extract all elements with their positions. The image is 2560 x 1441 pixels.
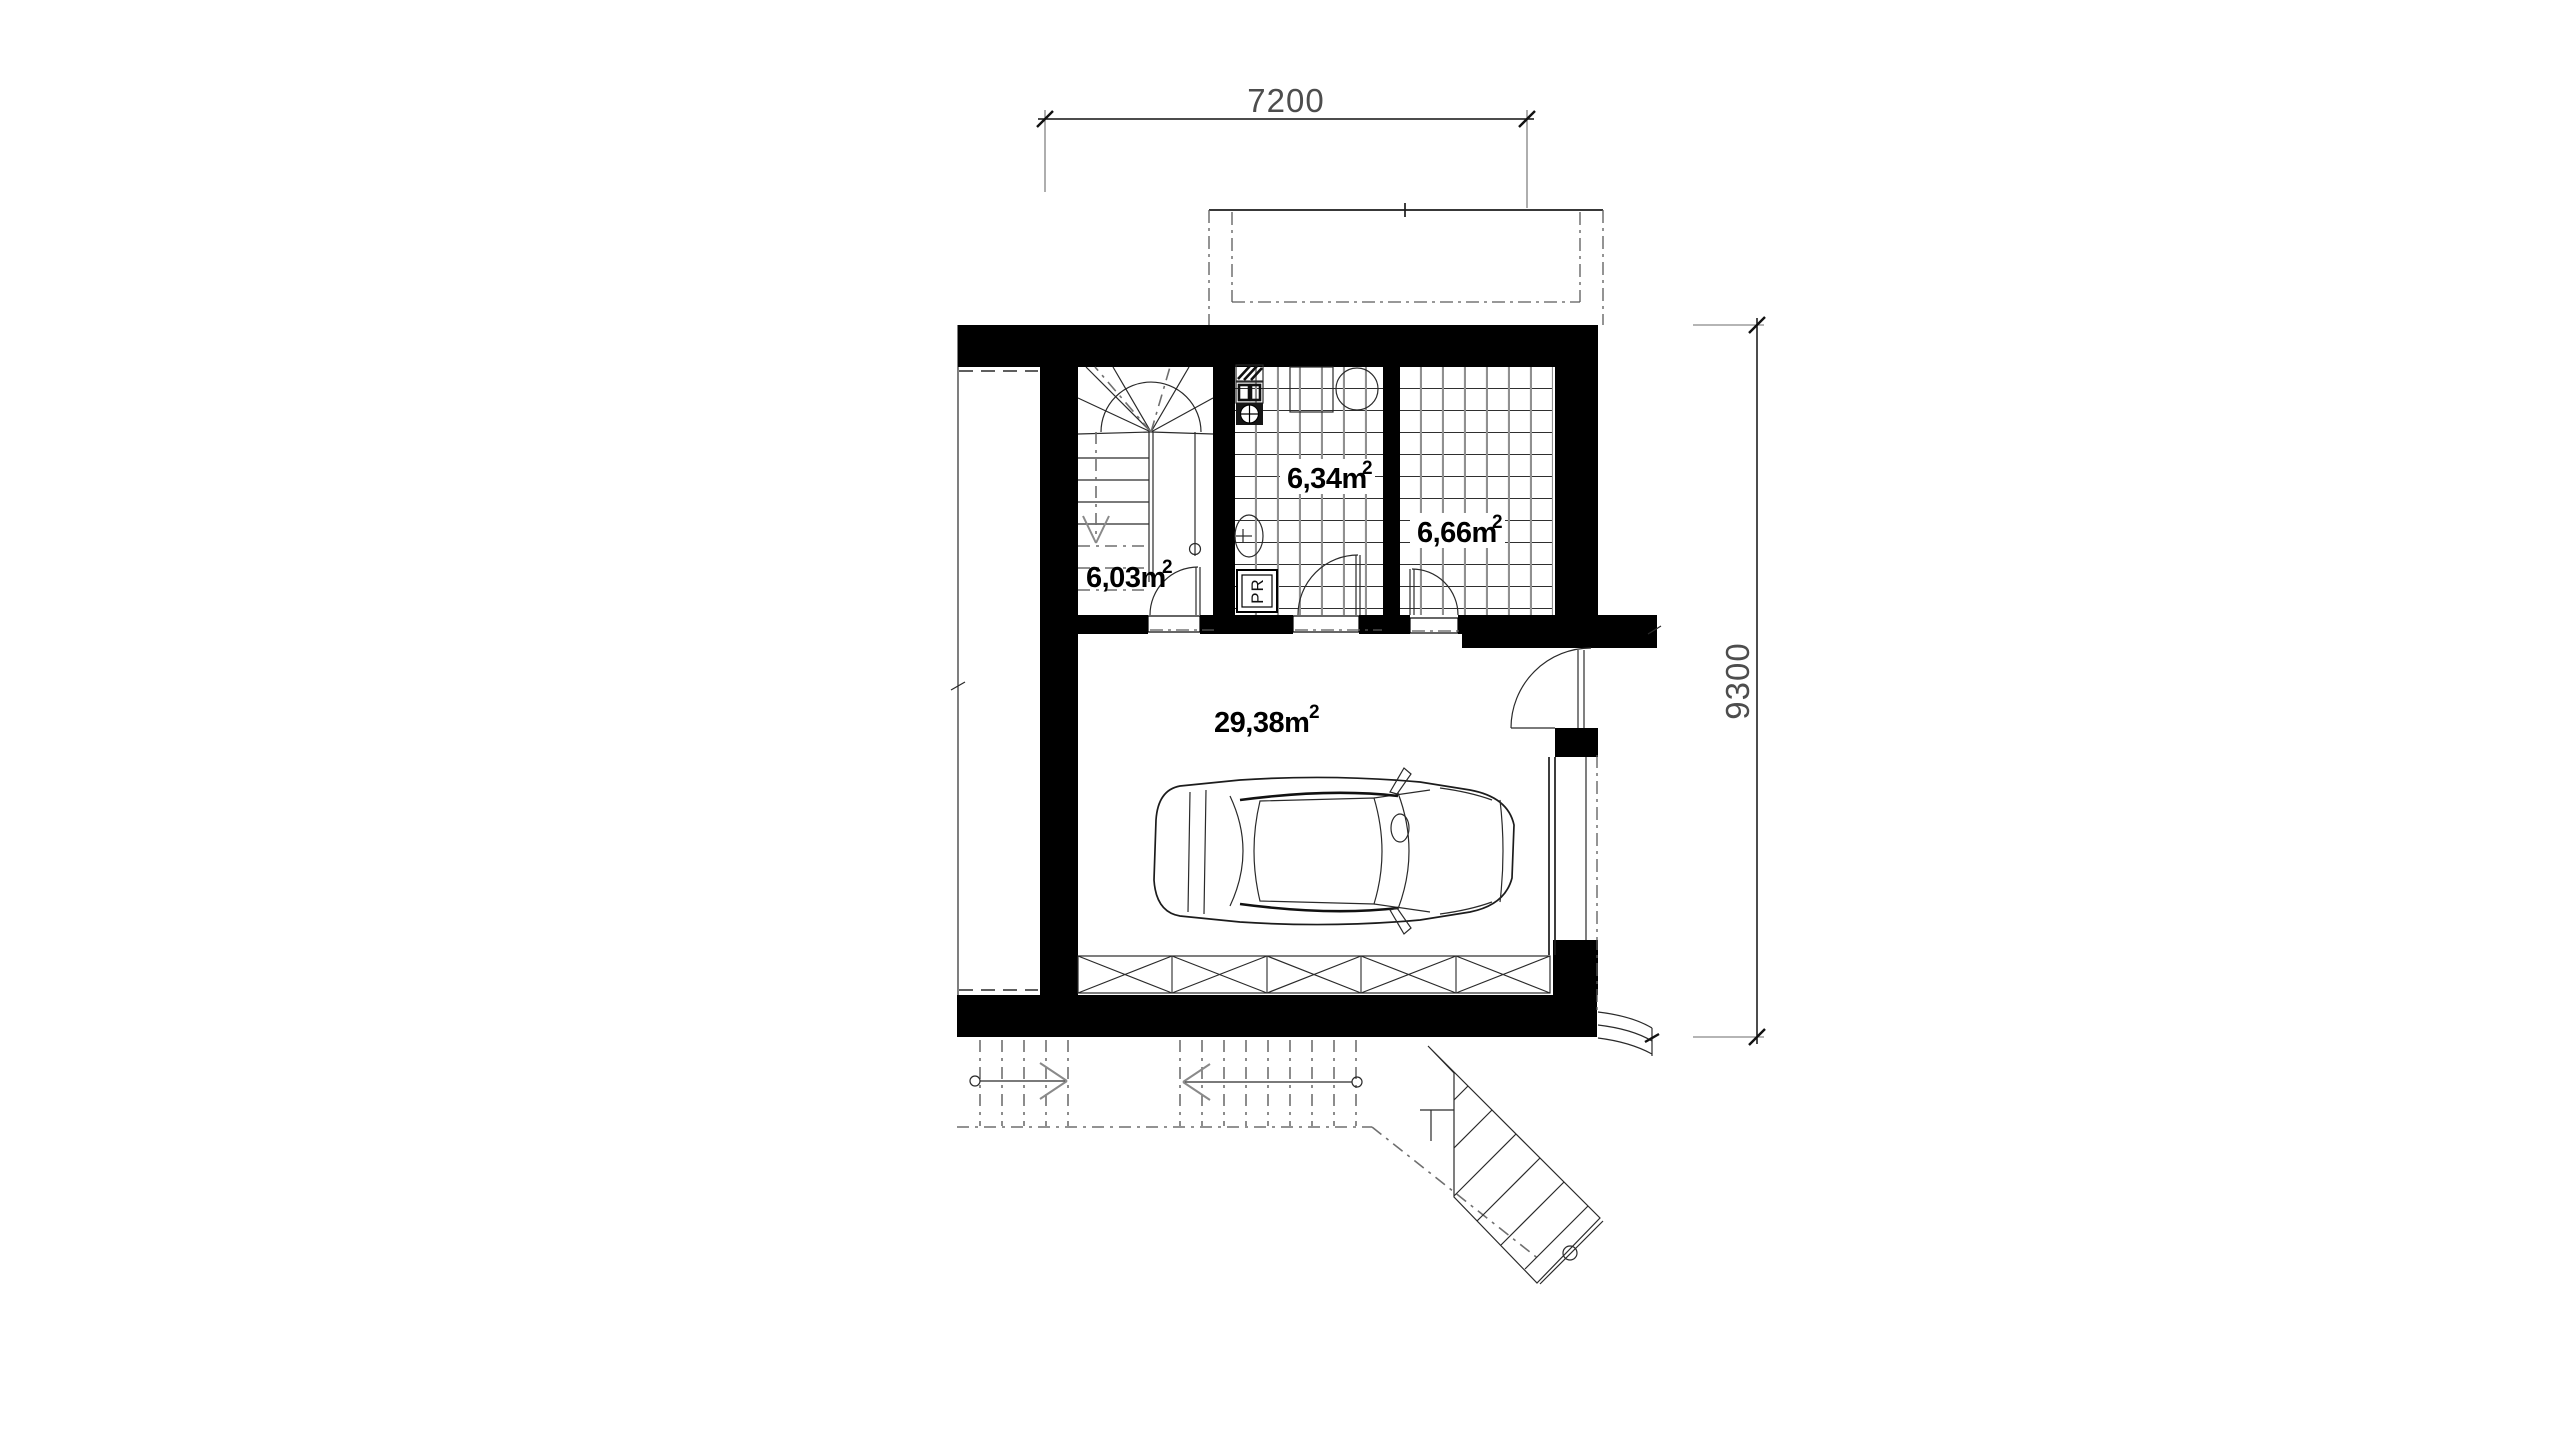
washing-machine-label: PR [1248,578,1267,604]
stair-diagonal [1420,1046,1603,1284]
door-thresholds [1148,616,1462,633]
washing-machine: PR [1237,570,1277,612]
tile-floor [1400,367,1553,615]
stair-direction-arrow [1083,516,1096,543]
stair-direction-arrow [1096,516,1109,543]
entrance-pillar [1555,728,1598,757]
room-area-sup: 2 [1362,458,1373,479]
room-area-sup: 2 [1162,557,1173,578]
stair-tread [1151,432,1213,434]
railing-mark [1420,1110,1454,1141]
wall-interior-segment [1200,615,1293,634]
stair-tread-dashed [1151,367,1170,432]
walk-arrowhead [1040,1063,1067,1081]
car-roof [1254,798,1382,904]
room-storage: 6,66m 2 [1400,367,1553,615]
wall-left [1040,367,1078,995]
exterior-stairs [957,1012,1659,1284]
room-garage: 29,38m 2 [1078,648,1597,1012]
diagonal-stair-edge [1540,1221,1603,1284]
wall-top [958,325,1598,367]
wall-interior-segment [1078,615,1148,634]
room-stair-hall: 6,03m 2 [1078,367,1213,615]
stair-tread [1078,432,1151,434]
curved-ramp-wall [1598,1012,1659,1056]
floor-plan-canvas: 7200 9300 [0,0,2560,1441]
car-side-window-line [1240,793,1398,911]
wall-interior-segment [1359,615,1410,634]
room-area-label: 6,66m [1417,517,1497,549]
dimension-right: 9300 [1693,317,1765,1045]
door-swing-entrance [1511,648,1591,728]
car-trunk-lines [1188,790,1206,914]
room-area-sup: 2 [1492,512,1503,533]
dimension-top-value: 7200 [1247,82,1324,119]
winder-staircase [1078,367,1213,590]
curved-wall-lines [1598,1012,1652,1054]
walk-start-circle [970,1076,980,1086]
stair-arc [1101,382,1201,432]
dimension-top: 7200 [1037,82,1535,208]
diagonal-stair-treads [1454,1086,1588,1269]
side-terrace [951,325,1038,1037]
walk-arrowhead [1183,1082,1210,1100]
canopy-outline [1209,203,1603,325]
hob-burner [1236,403,1263,425]
car-windshield [1398,793,1409,909]
garage-corner-block [1553,940,1598,995]
dimension-right-value: 9300 [1719,642,1756,719]
stair-treads [1180,1040,1356,1126]
walk-arrowhead [1183,1064,1210,1082]
car-rear-window [1230,796,1243,906]
stair-tread-dashed [1095,367,1151,432]
wall-between-stair-bath [1213,367,1235,615]
wall-between-bath-storage [1383,367,1400,615]
drain-grate [1078,956,1550,993]
car-top-view [1154,768,1514,934]
wall-right-upper [1555,367,1598,615]
walk-start-circle [1352,1077,1362,1087]
car-steering [1391,814,1409,842]
car-hood-lines [1440,788,1503,914]
grate-cross-pattern [1078,956,1550,993]
kitchen-sink [1236,382,1263,403]
room-area-label: 6,03m [1086,562,1166,594]
stair-flight-left [970,1040,1068,1126]
stair-tread [1078,398,1151,432]
wall-bottom [957,995,1597,1037]
floor-plan-page: 7200 9300 [0,0,2560,1441]
entrance-door [1511,648,1591,728]
stair-flight-right [1180,1040,1362,1126]
room-area-sup: 2 [1309,702,1320,723]
stair-treads [980,1040,1068,1126]
walk-arrowhead [1040,1081,1067,1099]
room-area-label: 6,34m [1287,463,1367,495]
room-area-label: 29,38m [1214,707,1309,739]
room-utility-bath: PR 6,34m 2 [1235,365,1383,615]
wall-wing-right [1462,615,1657,648]
